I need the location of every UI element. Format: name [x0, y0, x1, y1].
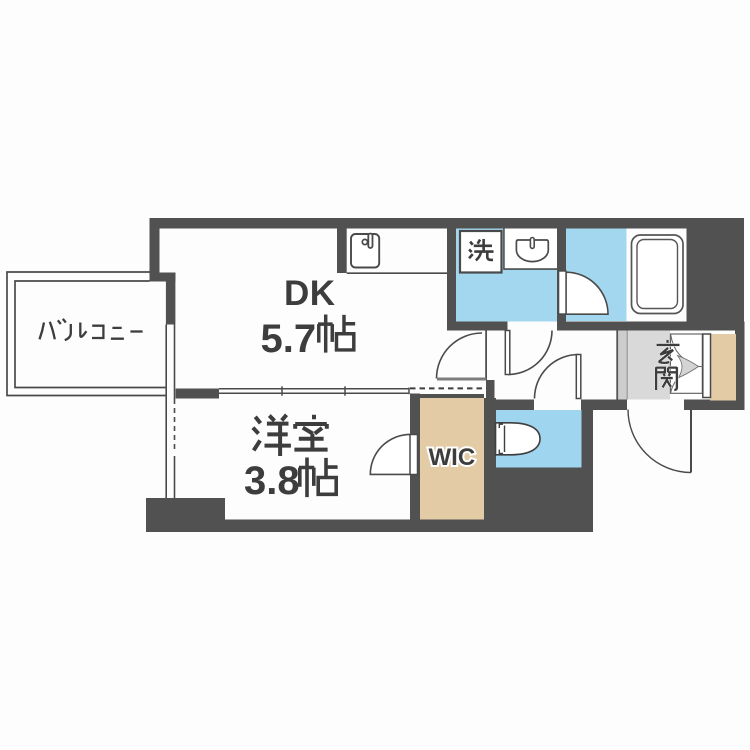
svg-text:WIC: WIC [429, 444, 476, 471]
svg-text:5.7: 5.7 [261, 317, 317, 361]
svg-text:3.8: 3.8 [244, 459, 300, 503]
svg-text:DK: DK [284, 274, 336, 313]
